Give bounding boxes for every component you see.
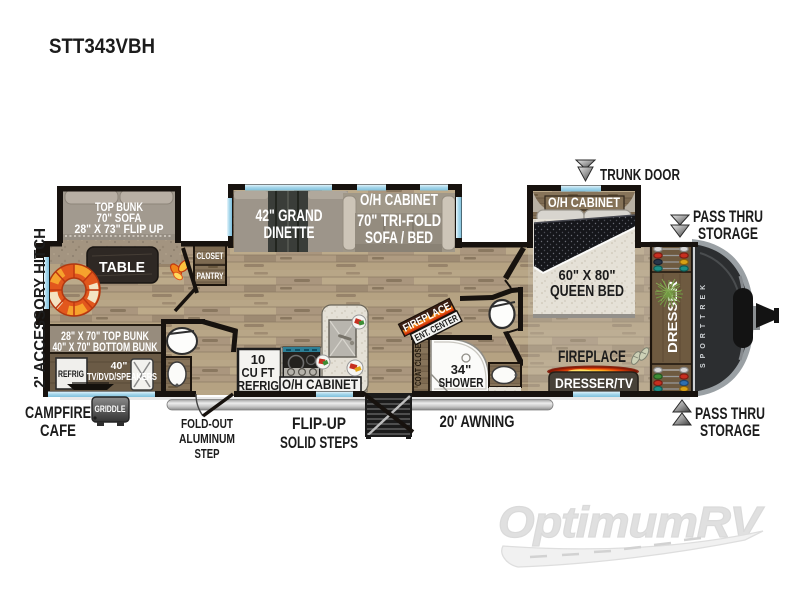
svg-text:O/H CABINET: O/H CABINET [360,192,438,209]
svg-text:SOFA / BED: SOFA / BED [365,229,433,247]
svg-text:FOLD-OUT: FOLD-OUT [181,417,233,431]
svg-text:CAFE: CAFE [40,422,76,440]
svg-text:DRESSER/TV: DRESSER/TV [555,375,634,391]
svg-text:2' ACCESSORY HITCH: 2' ACCESSORY HITCH [32,228,49,388]
svg-text:DINETTE: DINETTE [264,224,315,242]
svg-text:SOLID STEPS: SOLID STEPS [280,433,358,452]
svg-text:STEP: STEP [195,447,220,461]
svg-text:STT343VBH: STT343VBH [49,35,155,58]
svg-text:TABLE: TABLE [99,259,145,276]
svg-text:STORAGE: STORAGE [700,422,760,440]
svg-text:SHOWER: SHOWER [439,375,484,390]
svg-text:CLOSET: CLOSET [197,251,224,262]
svg-text:42" GRAND: 42" GRAND [256,207,323,225]
svg-text:QUEEN BED: QUEEN BED [550,283,624,300]
svg-text:TV/DVD/SPEAKERS: TV/DVD/SPEAKERS [87,372,157,383]
svg-text:CAMPFIRE: CAMPFIRE [25,404,91,422]
svg-text:PANTRY: PANTRY [197,271,224,282]
svg-text:28" X 73" FLIP UP: 28" X 73" FLIP UP [75,224,164,236]
svg-text:FIREPLACE: FIREPLACE [558,348,626,366]
svg-text:SPORTTREK: SPORTTREK [700,280,707,368]
svg-text:COAT CLOSET: COAT CLOSET [414,340,423,386]
svg-text:TRUNK DOOR: TRUNK DOOR [600,167,680,184]
svg-text:PASS THRU: PASS THRU [693,208,763,226]
svg-text:PASS THRU: PASS THRU [695,405,765,423]
svg-text:O/H CABINET: O/H CABINET [282,376,358,392]
svg-text:60" X 80": 60" X 80" [559,268,616,284]
svg-text:REFRIG: REFRIG [237,378,279,393]
svg-text:O/H CABINET: O/H CABINET [548,195,621,210]
svg-text:40": 40" [111,360,128,372]
svg-text:70" TRI-FOLD: 70" TRI-FOLD [357,212,441,230]
svg-text:REFRIG: REFRIG [58,369,84,380]
svg-text:FLIP-UP: FLIP-UP [292,414,346,433]
svg-text:GRIDDLE: GRIDDLE [95,404,126,415]
svg-text:20' AWNING: 20' AWNING [440,412,515,431]
svg-text:ALUMINUM: ALUMINUM [179,432,235,446]
svg-text:STORAGE: STORAGE [698,225,758,243]
